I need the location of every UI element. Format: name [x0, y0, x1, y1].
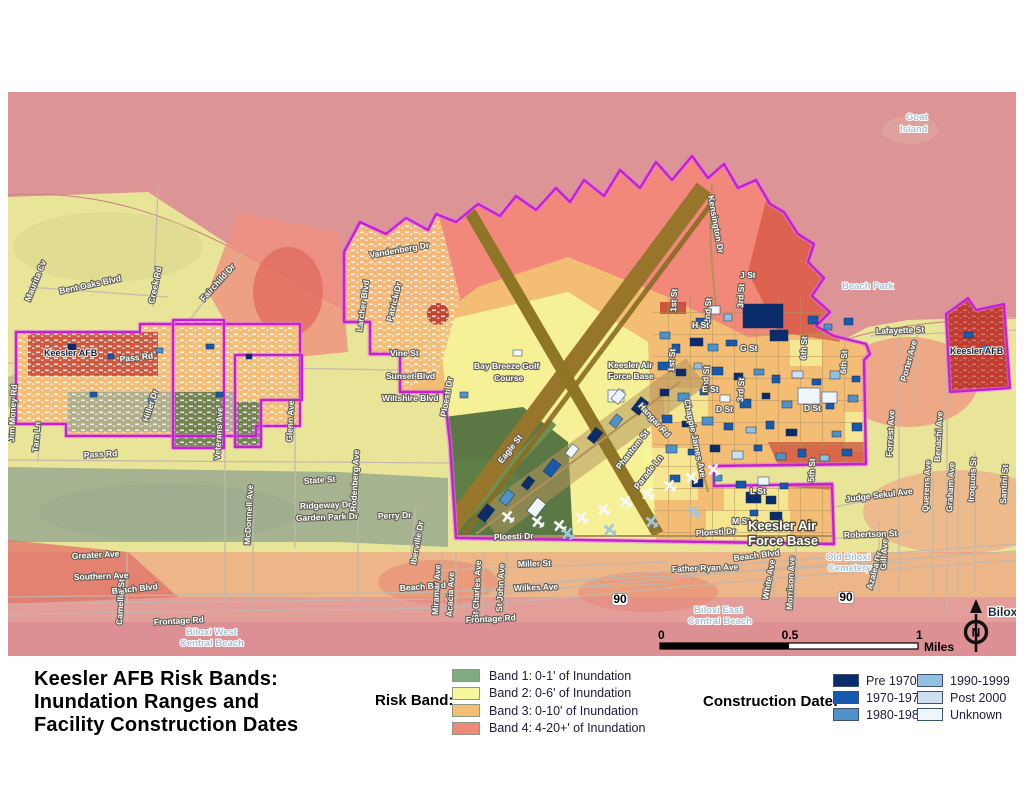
- scale-tick-05: 0.5: [782, 628, 799, 642]
- building: [798, 388, 820, 404]
- building: [724, 314, 732, 321]
- map-label: D St: [716, 404, 733, 414]
- title-line-2: Inundation Ranges and: [34, 691, 298, 714]
- building: [964, 332, 973, 338]
- building: [216, 392, 223, 397]
- map-label: Vine St: [390, 348, 419, 358]
- post2000-swatch: [917, 691, 943, 704]
- band3-desc: 0-10' of Inundation: [535, 704, 638, 718]
- map-label: Keesler Air: [608, 360, 653, 370]
- map-label: Central Beach: [180, 638, 244, 649]
- building: [826, 403, 834, 409]
- building: [736, 481, 746, 488]
- 1990s-label: 1990-1999: [950, 674, 1010, 688]
- building: [832, 431, 841, 437]
- construction-row-unknown: Unknown: [917, 706, 1010, 723]
- band1-swatch: [452, 669, 480, 682]
- building: [852, 376, 860, 382]
- building: [844, 318, 853, 325]
- map-label: Miller St: [518, 558, 552, 569]
- map-label: Course: [494, 373, 524, 383]
- building: [746, 427, 756, 433]
- band2-label: Band 2:: [489, 686, 535, 700]
- building: [776, 453, 786, 460]
- map-label: Gill Ave: [878, 538, 890, 570]
- map-label: L St: [750, 486, 766, 496]
- building: [762, 393, 770, 399]
- building: [750, 510, 758, 516]
- map-label: 6th St: [838, 350, 849, 374]
- building: [156, 348, 163, 353]
- page: { "title": {"lines": ["Keesler AFB Risk …: [0, 0, 1024, 791]
- building: [660, 332, 670, 339]
- svg-text:90: 90: [839, 590, 853, 604]
- building: [812, 379, 821, 385]
- pre1970-swatch: [833, 674, 859, 687]
- title-line-3: Facility Construction Dates: [34, 714, 298, 737]
- map-label: Wilkes Ave: [514, 581, 559, 593]
- building: [782, 401, 792, 408]
- scale-unit: Miles: [924, 640, 954, 654]
- map-label: 5th St: [806, 458, 817, 482]
- building: [702, 417, 713, 425]
- svg-text:90: 90: [613, 592, 627, 606]
- map: Maurita CvBent Oaks BlvdCreek RdFairchil…: [8, 92, 1016, 656]
- map-label: Robertson St: [844, 528, 898, 540]
- title-line-1: Keesler AFB Risk Bands:: [34, 668, 298, 691]
- building: [724, 423, 733, 430]
- band1-label: Band 1:: [489, 669, 535, 683]
- building: [758, 477, 769, 485]
- map-label: Keesler AFB: [44, 348, 98, 358]
- map-label: G St: [740, 343, 758, 353]
- map-label: Biloxi West: [186, 627, 238, 638]
- building: [792, 371, 803, 378]
- band4-swatch: [452, 722, 480, 735]
- building: [720, 395, 730, 402]
- building: [712, 367, 723, 375]
- map-label: Central Beach: [688, 616, 752, 627]
- highway-90-shield: 90: [838, 590, 854, 604]
- map-label: Beach Park: [842, 281, 894, 292]
- building: [690, 338, 703, 346]
- map-label: Santini St: [998, 464, 1010, 504]
- building: [743, 304, 783, 328]
- building: [798, 449, 806, 457]
- map-label: Goat: [906, 112, 928, 123]
- map-label: 1st St: [668, 288, 679, 312]
- risk-band-row-2: Band 2: 0-6' of Inundation: [452, 685, 645, 703]
- band3-label: Band 3:: [489, 704, 535, 718]
- map-label: Lafayette St: [876, 324, 925, 336]
- band2-desc: 0-6' of Inundation: [535, 686, 631, 700]
- band4-desc: 4-20+' of Inundation: [535, 721, 645, 735]
- building: [824, 324, 832, 330]
- building: [710, 445, 720, 452]
- map-label: 6th St: [798, 336, 809, 360]
- construction-legend-col1: Pre 1970 1970-1979 1980-1989: [833, 672, 926, 724]
- map-label: Bay Breeze Golf: [474, 361, 539, 371]
- building: [676, 369, 686, 376]
- band4-label: Band 4:: [489, 721, 535, 735]
- map-label: 1st St: [666, 348, 677, 372]
- risk-band-row-3: Band 3: 0-10' of Inundation: [452, 702, 645, 720]
- map-label: Pass Rd: [84, 448, 118, 460]
- building: [206, 344, 214, 349]
- building: [754, 445, 762, 451]
- map-label: Biloxi: [988, 605, 1016, 619]
- map-label: E St: [702, 384, 719, 394]
- building: [714, 475, 722, 481]
- map-label: Force Base: [748, 533, 818, 548]
- building: [726, 340, 737, 346]
- map-label: Wiltshire Blvd: [382, 393, 439, 403]
- band1-desc: 0-1' of Inundation: [535, 669, 631, 683]
- map-label: Ridgeway Dr: [300, 499, 352, 511]
- building: [766, 496, 776, 504]
- building: [852, 423, 862, 431]
- map-label: Cemetery: [828, 563, 872, 574]
- construction-row-1990s: 1990-1999: [917, 672, 1010, 689]
- map-label: 3rd St: [735, 377, 746, 402]
- map-label: 3rd St: [735, 283, 746, 308]
- map-canvas: Maurita CvBent Oaks BlvdCreek RdFairchil…: [8, 92, 1016, 656]
- construction-row-1970s: 1970-1979: [833, 689, 926, 706]
- building: [90, 392, 97, 397]
- map-label: Keesler AFB: [950, 346, 1004, 356]
- construction-date-legend-label: Construction Date:: [703, 693, 838, 710]
- building: [848, 395, 858, 402]
- building: [772, 375, 780, 383]
- north-letter: N: [972, 626, 981, 640]
- map-label: Old Biloxi: [826, 552, 870, 563]
- map-label: D St: [804, 403, 821, 413]
- risk-band-legend: Band 1: 0-1' of Inundation Band 2: 0-6' …: [452, 667, 645, 737]
- construction-legend-col2: 1990-1999 Post 2000 Unknown: [917, 672, 1010, 724]
- construction-row-pre1970: Pre 1970: [833, 672, 926, 689]
- scale-tick-0: 0: [658, 628, 665, 642]
- building: [786, 429, 797, 436]
- map-label: J St: [740, 270, 756, 280]
- building: [842, 449, 852, 456]
- building: [770, 330, 788, 341]
- building: [766, 421, 774, 429]
- building: [660, 389, 669, 396]
- map-label: Ploesti Dr: [696, 526, 737, 538]
- risk-band-legend-label: Risk Band:: [375, 692, 453, 709]
- pre1970-label: Pre 1970: [866, 674, 917, 688]
- building: [666, 445, 677, 453]
- highway-90-shield: 90: [612, 592, 628, 606]
- building: [780, 483, 788, 489]
- map-label: Biloxi East: [694, 605, 743, 616]
- map-label: Perry Dr: [378, 510, 413, 521]
- 1970s-swatch: [833, 691, 859, 704]
- building: [820, 455, 829, 461]
- post2000-label: Post 2000: [950, 691, 1006, 705]
- construction-row-post2000: Post 2000: [917, 689, 1010, 706]
- map-label: Ploesti Dr: [494, 531, 535, 542]
- building: [246, 354, 252, 359]
- scale-tick-1: 1: [916, 628, 923, 642]
- building: [708, 344, 718, 351]
- risk-band-row-4: Band 4: 4-20+' of Inundation: [452, 720, 645, 738]
- map-label: Force Base: [608, 371, 654, 381]
- unknown-label: Unknown: [950, 708, 1002, 722]
- map-label: Island: [900, 124, 928, 135]
- map-label: Sunset Blvd: [386, 371, 435, 381]
- building: [754, 369, 764, 375]
- construction-row-1980s: 1980-1989: [833, 706, 926, 723]
- building: [822, 392, 837, 403]
- building: [732, 451, 743, 459]
- building: [513, 350, 522, 356]
- building: [808, 316, 818, 324]
- 1990s-swatch: [917, 674, 943, 687]
- building: [460, 392, 468, 398]
- map-label: H St: [692, 320, 709, 330]
- band2-swatch: [452, 687, 480, 700]
- map-title: Keesler AFB Risk Bands: Inundation Range…: [34, 668, 298, 737]
- risk-band-row-1: Band 1: 0-1' of Inundation: [452, 667, 645, 685]
- 1980s-swatch: [833, 708, 859, 721]
- map-label: Keesler Air: [748, 518, 816, 533]
- building: [108, 354, 114, 359]
- band3-swatch: [452, 704, 480, 717]
- unknown-swatch: [917, 708, 943, 721]
